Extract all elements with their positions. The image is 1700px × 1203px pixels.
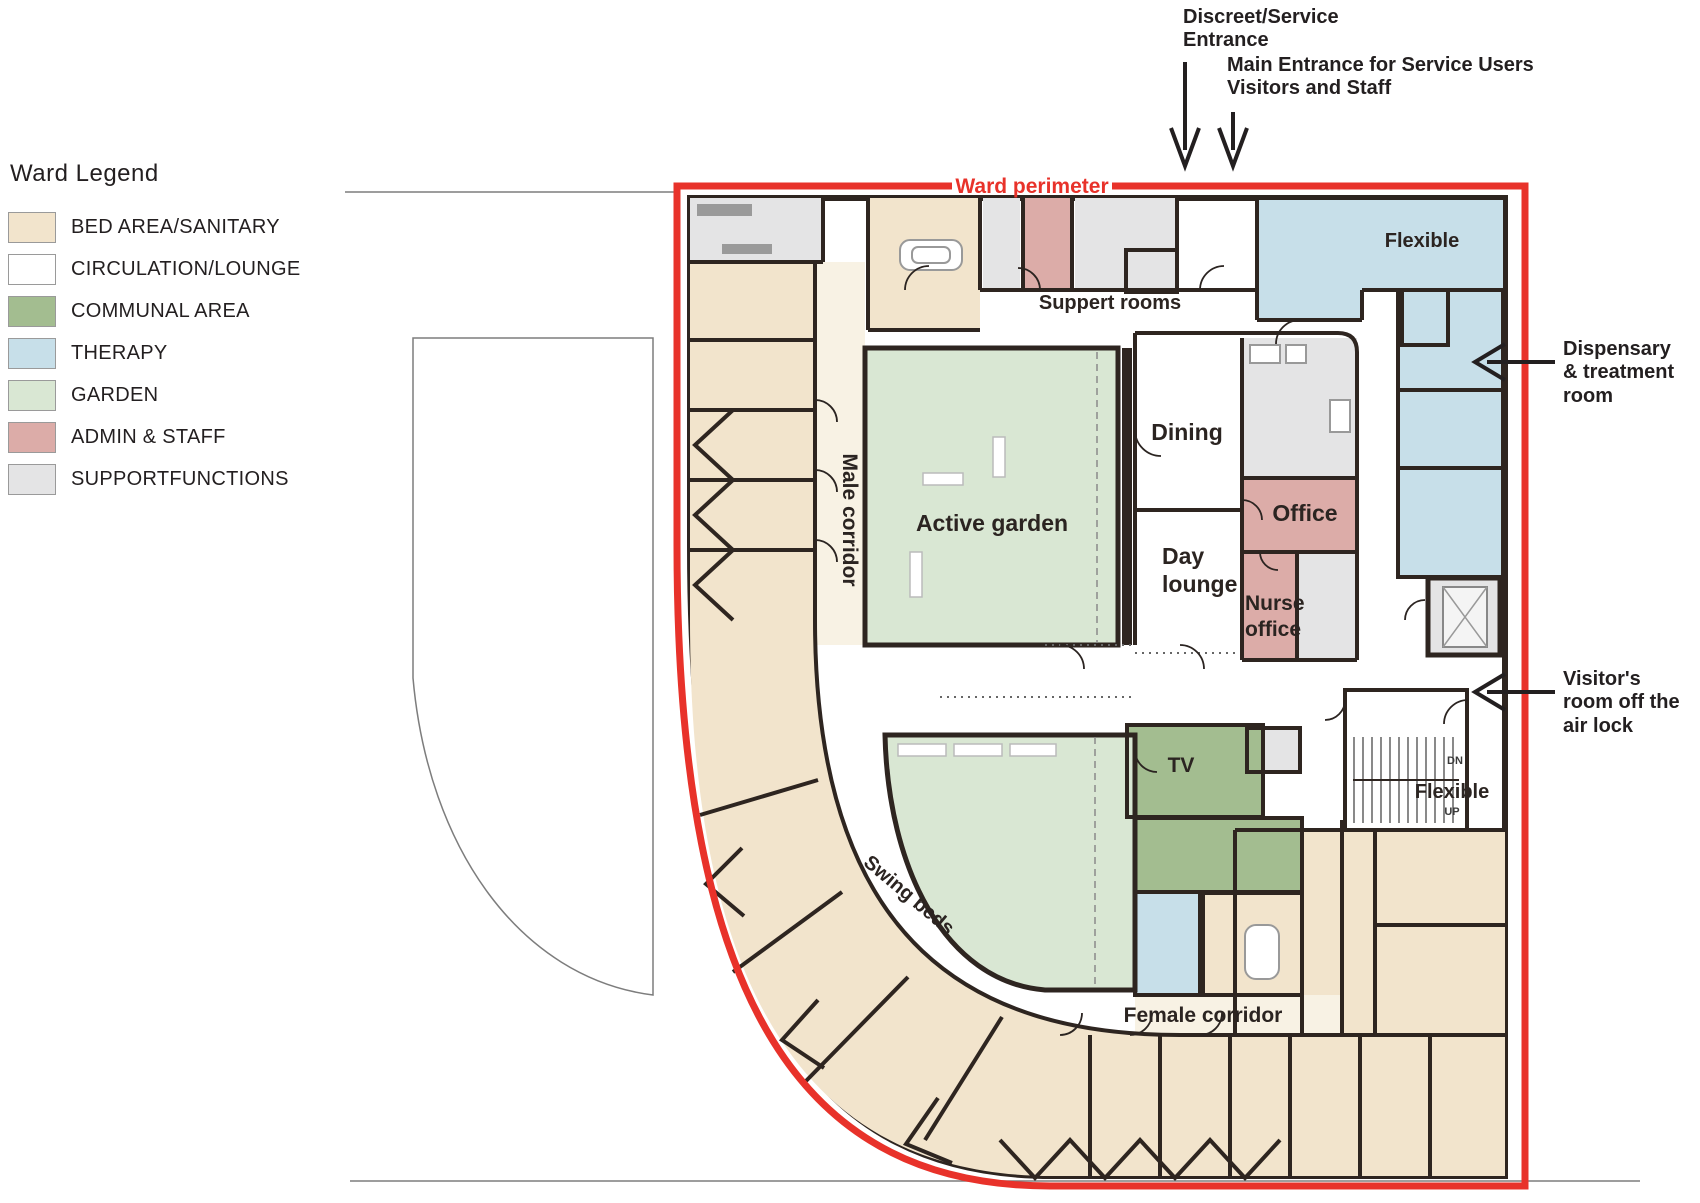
room-label-nurse-2: office <box>1245 618 1301 641</box>
room-label-dining: Dining <box>1151 419 1223 445</box>
garden-planter-2 <box>993 437 1005 477</box>
bathtub-bottom <box>1245 925 1279 979</box>
room-tv <box>1127 725 1263 817</box>
garden-planter-3 <box>910 552 922 597</box>
room-therapy-bottom <box>1135 892 1200 995</box>
site-outline-hall <box>413 338 653 995</box>
room-label-day-lounge-2: lounge <box>1162 571 1237 597</box>
room-label-flexible-stairs: Flexible <box>1415 781 1489 803</box>
stairs-dn-label: DN <box>1447 755 1463 767</box>
fixture-kitchen-3 <box>1330 400 1350 432</box>
room-label-flexible-top: Flexible <box>1385 230 1459 252</box>
fixture-cabinet-2 <box>722 244 772 254</box>
corridor-label-male: Male corridor <box>838 453 861 586</box>
fixture-kitchen-1 <box>1250 345 1280 363</box>
room-support-top-a <box>983 198 1020 290</box>
garden-planter-1 <box>923 473 963 485</box>
garden2-planter-3 <box>1010 744 1056 756</box>
corridor-label-female: Female corridor <box>1124 1004 1283 1027</box>
room-label-day-lounge-1: Day <box>1162 543 1204 569</box>
floor-plan-svg: Ward perimeter Suppert rooms Flexible Di… <box>0 0 1700 1203</box>
fixture-cabinet-1 <box>697 204 752 216</box>
room-active-garden <box>865 348 1118 645</box>
garden2-planter-2 <box>954 744 1002 756</box>
bathtub-top-inner <box>912 247 950 263</box>
fixture-kitchen-2 <box>1286 345 1306 363</box>
room-bedrooms-left-column <box>690 262 815 620</box>
floor-plan-page: Ward Legend BED AREA/SANITARY CIRCULATIO… <box>0 0 1700 1203</box>
stairs-up-label: UP <box>1444 806 1459 818</box>
ward-perimeter-label: Ward perimeter <box>955 175 1108 198</box>
garden2-planter-1 <box>898 744 946 756</box>
room-admin-top <box>1023 198 1072 290</box>
room-support-by-nurse <box>1297 552 1357 660</box>
room-label-suppert-rooms: Suppert rooms <box>1039 292 1181 314</box>
room-label-tv: TV <box>1168 754 1195 777</box>
room-label-active-garden: Active garden <box>916 510 1068 536</box>
room-label-nurse-1: Nurse <box>1245 592 1305 615</box>
room-dispensary-treatment <box>1398 290 1503 577</box>
room-label-office: Office <box>1272 500 1337 526</box>
